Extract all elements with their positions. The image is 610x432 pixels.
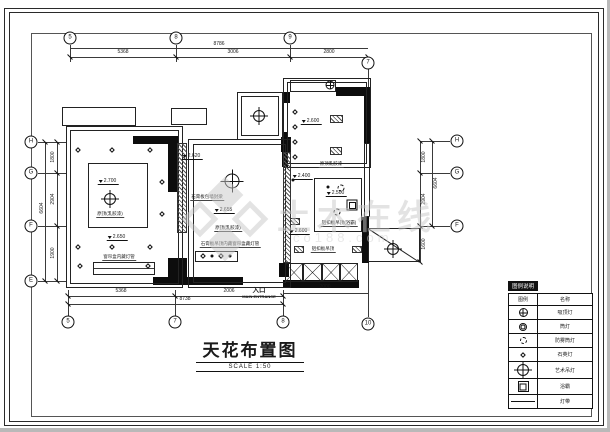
plan-label: 石膏板包墙封梁 xyxy=(190,194,224,201)
drying-rack-panel xyxy=(340,263,358,282)
cad-drawing-sheet: 2.7002.6502.6202.6552.6002.4002.5002.600… xyxy=(0,0,610,432)
ceiling-lamp-icon xyxy=(519,308,528,317)
hatched-wall xyxy=(352,246,362,253)
window-edge-bottom xyxy=(0,428,610,432)
hatched-wall xyxy=(330,147,342,155)
hatched-wall xyxy=(283,152,291,263)
legend-header-name: 名称 xyxy=(538,294,593,306)
legend-row: 艺术吊灯 xyxy=(509,362,593,379)
wall-outline xyxy=(88,163,148,228)
hatched-wall xyxy=(330,115,343,123)
legend-title: 图例说明 xyxy=(508,281,538,291)
spotlight-icon xyxy=(211,255,214,258)
plan-label: 铝扣板吊顶(浴霸) xyxy=(321,220,358,227)
dimension-text: 6604 xyxy=(433,177,439,188)
dim-line xyxy=(283,293,368,294)
spotlight-icon xyxy=(229,255,232,258)
dimension-text: 5368 xyxy=(117,49,128,55)
grid-bubble: H xyxy=(25,136,38,149)
dimension-text: 8786 xyxy=(213,41,224,47)
hatched-wall xyxy=(294,246,304,253)
ceiling-lamp-icon xyxy=(326,81,335,90)
dimension-text: 6604 xyxy=(39,202,45,213)
dim-line xyxy=(38,142,66,143)
legend-row: 防雾筒灯 xyxy=(509,334,593,348)
drying-rack-panel xyxy=(285,263,303,282)
hatched-wall xyxy=(290,218,300,225)
wall-outline xyxy=(364,143,370,217)
dimension-text: 1900 xyxy=(50,247,56,258)
plan-label: 石膏板吊顶内藏窗帘盒藏灯管 xyxy=(200,241,261,248)
grid-bubble: 9 xyxy=(284,32,297,45)
dim-line xyxy=(57,142,58,281)
dimension-text: 3006 xyxy=(227,49,238,55)
legend-name: 灯带 xyxy=(538,395,593,409)
plan-label: 铝扣板吊顶 xyxy=(311,246,336,253)
dim-line xyxy=(420,173,450,174)
dimension-text: 8738 xyxy=(179,296,190,302)
legend-row: 浴霸 xyxy=(509,379,593,395)
plan-label: 窗帘盒内藏灯管 xyxy=(102,254,136,261)
legend-header-symbol: 图例 xyxy=(509,294,538,306)
elevation-mark: 2.400 xyxy=(292,173,313,180)
dimension-text: 1600 xyxy=(421,238,427,249)
plan-label: 原顶(乳胶漆) xyxy=(214,225,242,232)
legend-row: 吸顶灯 xyxy=(509,306,593,320)
dim-line xyxy=(38,226,66,227)
elevation-mark: 2.700 xyxy=(98,178,119,185)
grid-bubble: G xyxy=(451,167,464,180)
legend: 图例说明 图例 名称 吸顶灯筒灯防雾筒灯石英灯艺术吊灯浴霸灯带 xyxy=(508,275,593,409)
chandelier-lamp-icon xyxy=(104,193,116,205)
drawing-scale: SCALE 1:50 xyxy=(196,364,304,370)
chandelier-lamp-icon xyxy=(225,174,240,189)
dim-line xyxy=(45,142,46,281)
grid-bubble: F xyxy=(25,220,38,233)
dim-line xyxy=(38,281,66,282)
entrance-label-cn: 入口 xyxy=(238,284,280,294)
wall-outline xyxy=(171,108,207,125)
light-strip-icon xyxy=(511,401,535,402)
wall-outline xyxy=(62,107,136,126)
drying-rack-panel xyxy=(322,263,340,282)
spotlight-icon xyxy=(327,186,330,189)
dimension-text: 2006 xyxy=(223,288,234,294)
dimension-text: 1800 xyxy=(50,151,56,162)
dimension-text: 5368 xyxy=(115,288,126,294)
legend-name: 艺术吊灯 xyxy=(538,362,593,379)
elevation-mark: 2.600 xyxy=(301,118,322,125)
title-underline xyxy=(196,362,304,363)
grid-bubble: G xyxy=(25,167,38,180)
legend-name: 防雾筒灯 xyxy=(538,334,593,348)
dimension-text: 1800 xyxy=(421,151,427,162)
grid-bubble: 7 xyxy=(362,57,375,70)
elevation-mark: 2.600 xyxy=(289,228,310,235)
grid-bubble: 8 xyxy=(277,316,290,329)
entrance-note: 入口 MAIN ENTRANCE xyxy=(238,284,280,299)
plan-label: 原顶(乳胶漆) xyxy=(96,211,124,218)
grid-bubble: 8 xyxy=(170,32,183,45)
dimension-text: 2000 xyxy=(319,284,330,290)
legend-table: 图例 名称 吸顶灯筒灯防雾筒灯石英灯艺术吊灯浴霸灯带 xyxy=(508,293,593,409)
dim-line xyxy=(175,290,176,316)
legend-symbol-cell xyxy=(509,348,538,362)
chandelier-lamp-icon xyxy=(253,110,265,122)
downlight-icon xyxy=(519,323,527,331)
bath-heater-icon xyxy=(518,381,529,392)
legend-symbol-cell xyxy=(509,306,538,320)
elevation-mark: 2.655 xyxy=(214,207,235,214)
grid-bubble: F xyxy=(451,220,464,233)
wall-outline xyxy=(287,82,367,164)
moistureproof-downlight-icon xyxy=(520,337,527,344)
grid-bubble: 10 xyxy=(362,318,375,331)
plan-label: 原顶乳胶漆 xyxy=(319,161,344,168)
chandelier-icon xyxy=(517,364,529,376)
drawing-title: 天花布置图 xyxy=(196,336,304,361)
legend-row: 石英灯 xyxy=(509,348,593,362)
drying-rack-panel xyxy=(303,263,321,282)
dim-line xyxy=(420,141,450,142)
dim-line xyxy=(70,57,368,58)
moistureproof-downlight-icon xyxy=(334,209,341,216)
legend-row: 筒灯 xyxy=(509,320,593,334)
legend-name: 石英灯 xyxy=(538,348,593,362)
legend-symbol-cell xyxy=(509,334,538,348)
legend-symbol-cell xyxy=(509,320,538,334)
grid-bubble: 5 xyxy=(62,316,75,329)
elevation-mark: 2.650 xyxy=(107,234,128,241)
grid-bubble: 5 xyxy=(64,32,77,45)
dimension-text: 2904 xyxy=(50,193,56,204)
legend-name: 筒灯 xyxy=(538,320,593,334)
elevation-mark: 2.620 xyxy=(182,153,203,160)
dim-line xyxy=(38,173,66,174)
bath-heater-icon xyxy=(347,200,358,211)
grid-bubble: 7 xyxy=(169,316,182,329)
entrance-label-en: MAIN ENTRANCE xyxy=(238,294,280,299)
dim-line xyxy=(368,262,369,317)
legend-symbol-cell xyxy=(509,395,538,409)
dim-line xyxy=(420,226,450,227)
legend-row: 灯带 xyxy=(509,395,593,409)
dimension-text: 2904 xyxy=(421,193,427,204)
legend-name: 浴霸 xyxy=(538,379,593,395)
quartz-lamp-icon xyxy=(520,352,526,358)
legend-name: 吸顶灯 xyxy=(538,306,593,320)
elevation-mark: 2.500 xyxy=(326,190,347,197)
legend-symbol-cell xyxy=(509,362,538,379)
legend-symbol-cell xyxy=(509,379,538,395)
drawing-title-block: 天花布置图 SCALE 1:50 xyxy=(196,336,304,373)
grid-bubble: E xyxy=(25,275,38,288)
grid-bubble: H xyxy=(451,135,464,148)
wall-outline xyxy=(193,144,286,283)
dimension-text: 2800 xyxy=(323,49,334,55)
scale-underline xyxy=(196,371,304,372)
chandelier-lamp-icon xyxy=(387,243,399,255)
